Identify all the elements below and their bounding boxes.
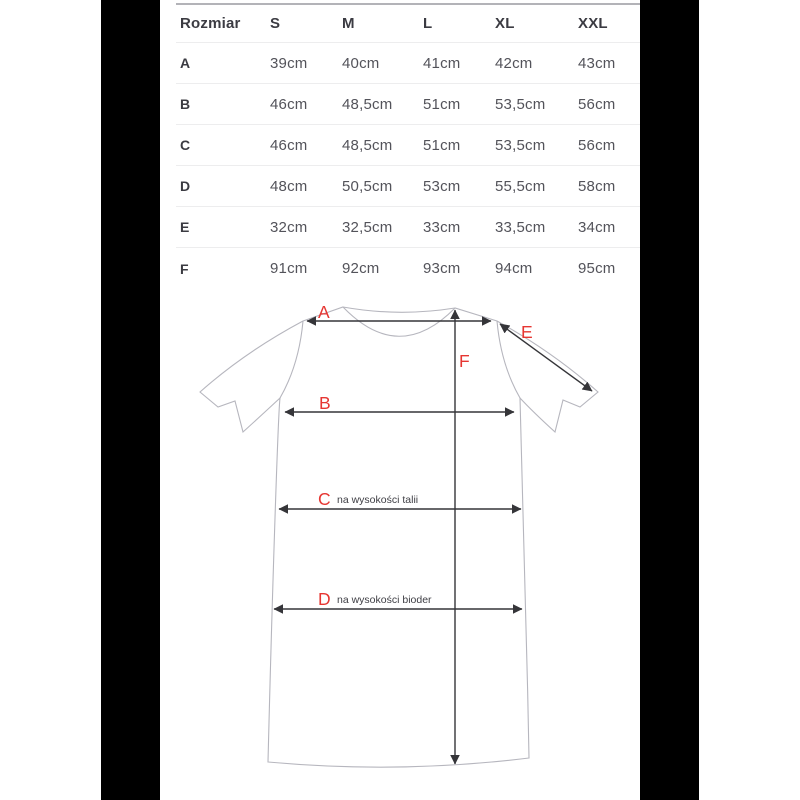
waist-note: na wysokości talii [337, 494, 418, 506]
dress-outline [200, 307, 598, 767]
label-B: B [319, 393, 331, 413]
label-F: F [459, 351, 470, 371]
hip-note: na wysokości bioder [337, 594, 432, 606]
dress-body-path [200, 307, 598, 767]
label-A: A [318, 302, 330, 322]
measurement-annotations: na wysokości talii na wysokości bioder [337, 494, 432, 606]
size-chart-image: Rozmiar S M L XL XXL A 39cm 40cm 41cm 42… [0, 0, 800, 800]
label-E: E [521, 322, 533, 342]
garment-measurement-diagram: A B C D E F na wysokości talii na wysoko… [0, 0, 800, 800]
label-C: C [318, 489, 331, 509]
arrow-E-sleeve-length [500, 324, 592, 391]
label-D: D [318, 589, 331, 609]
measurement-labels: A B C D E F [318, 302, 533, 609]
measurement-arrows [274, 310, 592, 764]
